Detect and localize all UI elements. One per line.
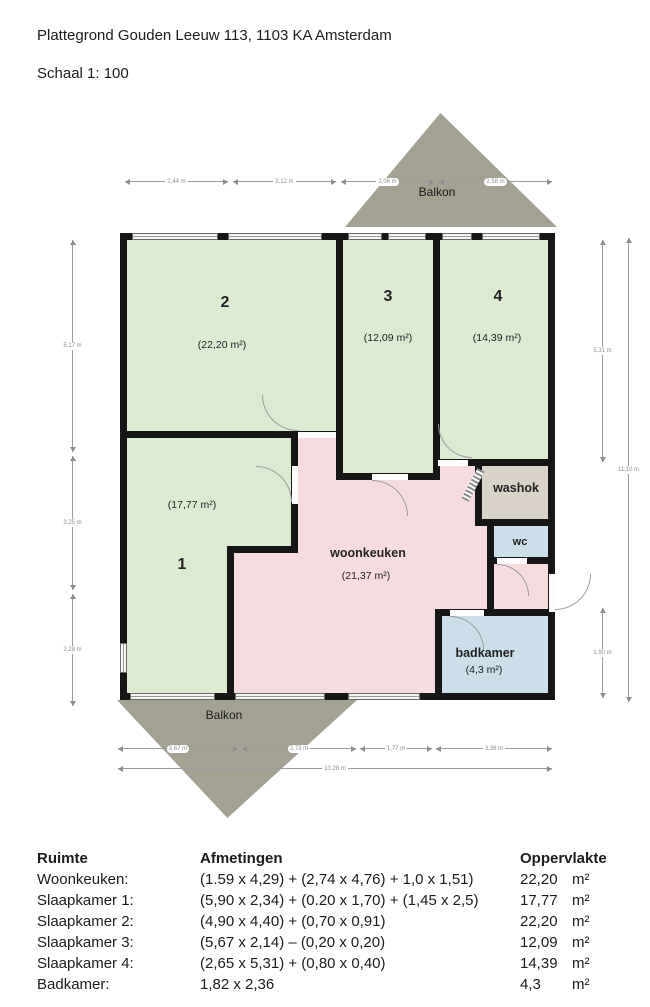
window bbox=[348, 233, 382, 240]
room-number-3: 3 bbox=[384, 288, 393, 306]
dimension-line: 3,36 m bbox=[436, 744, 552, 753]
door-opening bbox=[450, 610, 484, 616]
wall bbox=[227, 546, 298, 553]
table-row: Slaapkamer 2:(4,90 x 4,40) + (0,70 x 0,9… bbox=[37, 911, 622, 932]
balcony-top-triangle: Balkon bbox=[345, 113, 557, 227]
wall bbox=[487, 525, 494, 616]
dimension-label: 2,58 m bbox=[484, 178, 506, 186]
wall bbox=[227, 546, 234, 700]
table-cell-oppervlakte: 22,20 bbox=[520, 911, 572, 932]
table-header-row: RuimteAfmetingenOppervlakte bbox=[37, 848, 622, 869]
wall bbox=[435, 609, 442, 700]
door-swing-arc bbox=[555, 574, 591, 610]
room-name-woonkeuken: woonkeuken bbox=[330, 546, 406, 560]
dimension-label: 2,67 m bbox=[167, 745, 189, 753]
balcony-bottom-triangle: Balkon bbox=[117, 700, 357, 818]
window bbox=[442, 233, 472, 240]
table-cell-afmetingen: (5,67 x 2,14) – (0,20 x 0,20) bbox=[200, 932, 520, 953]
room-area-3: (12,09 m²) bbox=[364, 332, 412, 344]
room-area-badkamer: (4,3 m²) bbox=[466, 664, 503, 676]
room-area-4: (14,39 m²) bbox=[473, 332, 521, 344]
floor-plan: 2 (22,20 m²) 3 (12,09 m²) 4 (14,39 m²) (… bbox=[120, 233, 555, 700]
wall bbox=[433, 233, 440, 480]
dimension-line: 2,44 m bbox=[125, 177, 228, 186]
table-row: Woonkeuken:(1.59 x 4,29) + (2,74 x 4,76)… bbox=[37, 869, 622, 890]
table-cell-afmetingen: (4,90 x 4,40) + (0,70 x 0,91) bbox=[200, 911, 520, 932]
door-opening bbox=[298, 432, 336, 438]
table-cell-unit: m² bbox=[572, 974, 612, 995]
dimension-line: 2,73 m bbox=[242, 744, 356, 753]
room-area-woonkeuken: (21,37 m²) bbox=[342, 570, 390, 582]
wall bbox=[336, 233, 343, 480]
window bbox=[120, 643, 127, 673]
scale-label: Schaal 1: 100 bbox=[37, 65, 129, 82]
dimension-label: 1,90 m bbox=[591, 649, 613, 657]
door-opening bbox=[438, 460, 468, 466]
window bbox=[228, 233, 322, 240]
dimension-label: 5,31 m bbox=[591, 347, 613, 355]
dimension-label: 2,44 m bbox=[165, 178, 187, 186]
dimension-label: 11,10 m bbox=[616, 466, 641, 474]
table-cell-afmetingen: (1.59 x 4,29) + (2,74 x 4,76) + 1,0 x 1,… bbox=[200, 869, 520, 890]
table-cell-ruimte: Woonkeuken: bbox=[37, 869, 200, 890]
table-cell-oppervlakte: 14,39 bbox=[520, 953, 572, 974]
window bbox=[482, 233, 540, 240]
dimension-line: 2,28 m bbox=[68, 594, 77, 706]
table-cell-afmetingen: 1,82 x 2,36 bbox=[200, 974, 520, 995]
dimension-line: 3,25 m bbox=[68, 456, 77, 590]
table-cell-unit: m² bbox=[572, 953, 612, 974]
table-cell-unit: m² bbox=[572, 890, 612, 911]
table-cell-afmetingen: (5,90 x 2,34) + (0.20 x 1,70) + (1,45 x … bbox=[200, 890, 520, 911]
table-header-ruimte: Ruimte bbox=[37, 848, 200, 869]
table-header-afmetingen: Afmetingen bbox=[200, 848, 520, 869]
room-number-4: 4 bbox=[494, 288, 503, 306]
table-cell-oppervlakte: 4,3 bbox=[520, 974, 572, 995]
door-opening bbox=[497, 558, 527, 564]
table-cell-oppervlakte: 22,20 bbox=[520, 869, 572, 890]
dimension-line: 2,12 m bbox=[233, 177, 336, 186]
dimension-label: 3,25 m bbox=[61, 519, 83, 527]
room-name-wc: wc bbox=[513, 536, 528, 548]
room-slaapkamer-2 bbox=[120, 233, 342, 435]
room-area-1: (17,77 m²) bbox=[168, 499, 216, 511]
table-cell-ruimte: Slaapkamer 3: bbox=[37, 932, 200, 953]
table-cell-ruimte: Slaapkamer 2: bbox=[37, 911, 200, 932]
dimension-line: 2,67 m bbox=[118, 744, 238, 753]
table-row: Badkamer:1,82 x 2,364,3m² bbox=[37, 974, 622, 995]
room-number-2: 2 bbox=[221, 294, 230, 312]
table-cell-oppervlakte: 12,09 bbox=[520, 932, 572, 953]
window bbox=[130, 693, 215, 700]
dimension-label: 10,28 m bbox=[322, 765, 348, 773]
room-area-2: (22,20 m²) bbox=[198, 339, 246, 351]
room-slaapkamer-3 bbox=[342, 233, 437, 479]
area-table: RuimteAfmetingenOppervlakteWoonkeuken:(1… bbox=[37, 848, 622, 995]
table-row: Slaapkamer 4:(2,65 x 5,31) + (0,80 x 0,4… bbox=[37, 953, 622, 974]
table-cell-afmetingen: (2,65 x 5,31) + (0,80 x 0,40) bbox=[200, 953, 520, 974]
room-name-washok: washok bbox=[493, 481, 539, 495]
dimension-line: 5,17 m bbox=[68, 240, 77, 452]
door-opening bbox=[292, 466, 298, 504]
wall bbox=[120, 233, 127, 700]
dimension-line: 1,90 m bbox=[598, 608, 607, 698]
table-row: Slaapkamer 3:(5,67 x 2,14) – (0,20 x 0,2… bbox=[37, 932, 622, 953]
dimension-label: 5,17 m bbox=[61, 342, 83, 350]
table-cell-oppervlakte: 17,77 bbox=[520, 890, 572, 911]
page-title: Plattegrond Gouden Leeuw 113, 1103 KA Am… bbox=[37, 27, 392, 44]
dimension-label: 2,06 m bbox=[376, 178, 398, 186]
dimension-line: 1,77 m bbox=[360, 744, 432, 753]
dimension-line: 11,10 m bbox=[624, 238, 633, 702]
room-number-1: 1 bbox=[178, 556, 187, 574]
table-cell-ruimte: Badkamer: bbox=[37, 974, 200, 995]
door-opening bbox=[372, 474, 408, 480]
table-row: Slaapkamer 1:(5,90 x 2,34) + (0.20 x 1,7… bbox=[37, 890, 622, 911]
dimension-label: 2,12 m bbox=[273, 178, 295, 186]
room-slaapkamer-1-lower bbox=[120, 550, 230, 700]
balcony-bottom-label: Balkon bbox=[206, 708, 243, 722]
dimension-line: 2,06 m bbox=[341, 177, 434, 186]
table-cell-unit: m² bbox=[572, 869, 612, 890]
table-cell-unit: m² bbox=[572, 911, 612, 932]
window bbox=[348, 693, 420, 700]
window bbox=[132, 233, 218, 240]
dimension-label: 3,36 m bbox=[483, 745, 505, 753]
dimension-line: 2,58 m bbox=[439, 177, 552, 186]
dimension-label: 2,73 m bbox=[288, 745, 310, 753]
balcony-top-label: Balkon bbox=[419, 185, 456, 199]
dimension-line: 5,31 m bbox=[598, 240, 607, 462]
table-cell-ruimte: Slaapkamer 1: bbox=[37, 890, 200, 911]
wall bbox=[548, 233, 555, 700]
table-cell-unit: m² bbox=[572, 932, 612, 953]
window bbox=[388, 233, 426, 240]
window bbox=[235, 693, 325, 700]
table-cell-ruimte: Slaapkamer 4: bbox=[37, 953, 200, 974]
dimension-label: 2,28 m bbox=[61, 646, 83, 654]
table-header-oppervlakte: Oppervlakte bbox=[520, 848, 612, 869]
dimension-line: 10,28 m bbox=[118, 764, 552, 773]
dimension-label: 1,77 m bbox=[385, 745, 407, 753]
